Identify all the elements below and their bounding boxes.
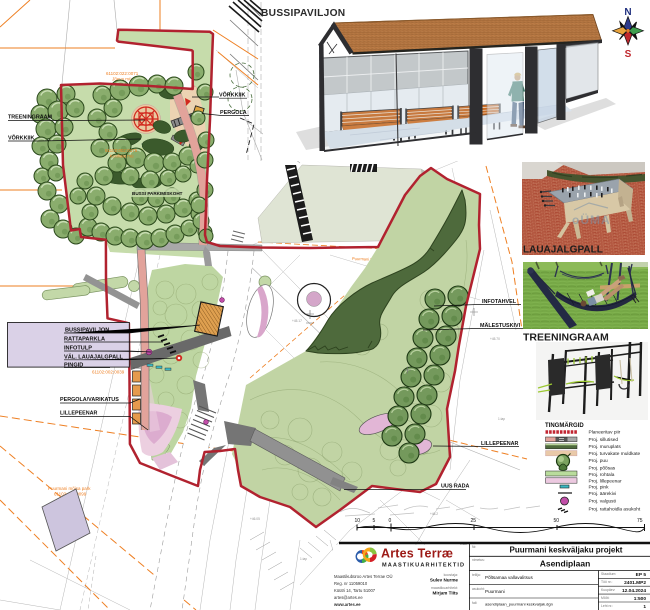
svg-text:RATTAPARKLA: RATTAPARKLA [64,337,105,343]
svg-text:Proj. pink: Proj. pink [589,485,610,491]
svg-text:Staadium:: Staadium: [601,572,616,576]
svg-text:PERGOLA/VARIKATUS: PERGOLA/VARIKATUS [60,397,119,403]
svg-text:Põltsamaa vallavalitsus: Põltsamaa vallavalitsus [485,575,533,580]
svg-text:asendiplaan_puurmani keskvalja: asendiplaan_puurmani keskvaljak.dgn [485,602,553,607]
svg-text:0: 0 [389,518,392,524]
svg-text:Töö nr.:: Töö nr.: [601,580,613,584]
svg-text:Proj. rattahoidla asukoht: Proj. rattahoidla asukoht [589,507,641,513]
svg-text:Artes Terræ: Artes Terræ [381,547,453,561]
svg-text:MÄLESTUSKIVI: MÄLESTUSKIVI [480,322,521,329]
svg-text:asukoht:: asukoht: [472,587,485,591]
svg-text:Kuupäev:: Kuupäev: [601,588,615,592]
svg-text:Nr.: Nr. [472,545,476,549]
svg-text:Kooliaia mü: Kooliaia mü [110,154,134,159]
svg-text:INFOTULP: INFOTULP [64,346,92,352]
svg-text:10: 10 [355,518,361,524]
svg-text:nimetus:: nimetus: [472,558,485,562]
svg-text:Asendiplaan: Asendiplaan [540,559,591,569]
svg-text:Küütri 14, Tartu 51007: Küütri 14, Tartu 51007 [334,588,376,593]
svg-text:EP 5: EP 5 [636,572,647,578]
svg-text:61102:002:0039: 61102:002:0039 [92,370,125,375]
svg-text:VÕRKKIIK: VÕRKKIIK [219,92,245,99]
svg-text:Maastikubüroo Artes Terrae OÜ: Maastikubüroo Artes Terrae OÜ [334,574,393,579]
svg-text:Sulev Nurme: Sulev Nurme [430,578,459,583]
svg-text:5: 5 [373,518,376,524]
svg-text:Proj. valgusti: Proj. valgusti [589,499,616,505]
svg-text:75: 75 [637,518,643,524]
svg-text:Proj. põõsas: Proj. põõsas [589,466,616,472]
svg-text:BUSSIPAVILJON: BUSSIPAVILJON [261,8,345,19]
svg-text:+45.17: +45.17 [292,319,302,323]
svg-text:+46.05: +46.05 [250,517,260,521]
svg-text:Proj. muruplats: Proj. muruplats [589,444,622,450]
svg-text:Reg. nr 11059010: Reg. nr 11059010 [334,581,368,586]
svg-text:61102:022:0071: 61102:022:0071 [106,71,139,76]
svg-text:www.artes.ee: www.artes.ee [333,602,361,607]
svg-text:2401.MP2: 2401.MP2 [624,580,646,586]
svg-text:Planeeritav piir: Planeeritav piir [589,430,621,436]
svg-text:1: 1 [643,604,646,610]
svg-text:TREENINGRAAM: TREENINGRAAM [523,332,609,344]
svg-text:Proj. lillepeenar: Proj. lillepeenar [589,479,622,485]
svg-text:25: 25 [471,518,477,524]
svg-text:koostaja:: koostaja: [444,573,458,577]
svg-text:TINGMÄRGID: TINGMÄRGID [545,422,584,429]
svg-text:LAUAJALGPALL: LAUAJALGPALL [523,245,603,256]
svg-text:Proj. turvakate muldkate: Proj. turvakate muldkate [589,451,641,457]
svg-text:Proj. äärekivi: Proj. äärekivi [589,491,617,497]
svg-text:artes@artes.ee: artes@artes.ee [334,595,363,600]
svg-text:+46.2: +46.2 [430,512,438,516]
svg-text:12.04.2024: 12.04.2024 [622,588,646,594]
svg-text:1.tap: 1.tap [498,417,505,421]
svg-text:61102:002:0175: 61102:002:0175 [105,148,138,153]
svg-text:Mõõt:: Mõõt: [601,596,610,600]
svg-text:1.tap: 1.tap [300,557,307,561]
svg-text:S: S [625,49,632,60]
svg-text:Proj. rohtala: Proj. rohtala [589,472,615,478]
svg-text:tellija:: tellija: [472,573,481,577]
svg-text:Puurmani: Puurmani [485,589,505,594]
svg-text:LILLEPEENAR: LILLEPEENAR [60,411,98,417]
svg-text:fail:: fail: [472,601,477,605]
svg-text:50: 50 [554,518,560,524]
svg-text:Mirjam Tiits: Mirjam Tiits [433,591,459,596]
svg-text:MAASTIKUARHITEKTID: MAASTIKUARHITEKTID [382,563,465,569]
svg-text:Leht nr.:: Leht nr.: [601,604,613,608]
svg-text:Puurmani mõisa park: Puurmani mõisa park [48,486,91,491]
svg-text:maastikuarhitekt:: maastikuarhitekt: [431,586,458,590]
svg-text:+45.70: +45.70 [490,337,500,341]
svg-text:Proj. puu: Proj. puu [589,458,609,464]
svg-text:oÜMA: oÜMA [572,212,611,227]
svg-text:1:500: 1:500 [634,596,647,602]
svg-text:Puurmani keskväljaku projekt: Puurmani keskväljaku projekt [510,546,623,555]
svg-text:VÕRKKIIK: VÕRKKIIK [8,135,34,142]
svg-text:TREENINGRAAM: TREENINGRAAM [8,115,53,121]
svg-text:BUSSI PARKIMISKOHT: BUSSI PARKIMISKOHT [132,191,183,196]
svg-text:Proj. sillutised: Proj. sillutised [589,437,619,443]
svg-text:UUS RADA: UUS RADA [441,484,470,490]
